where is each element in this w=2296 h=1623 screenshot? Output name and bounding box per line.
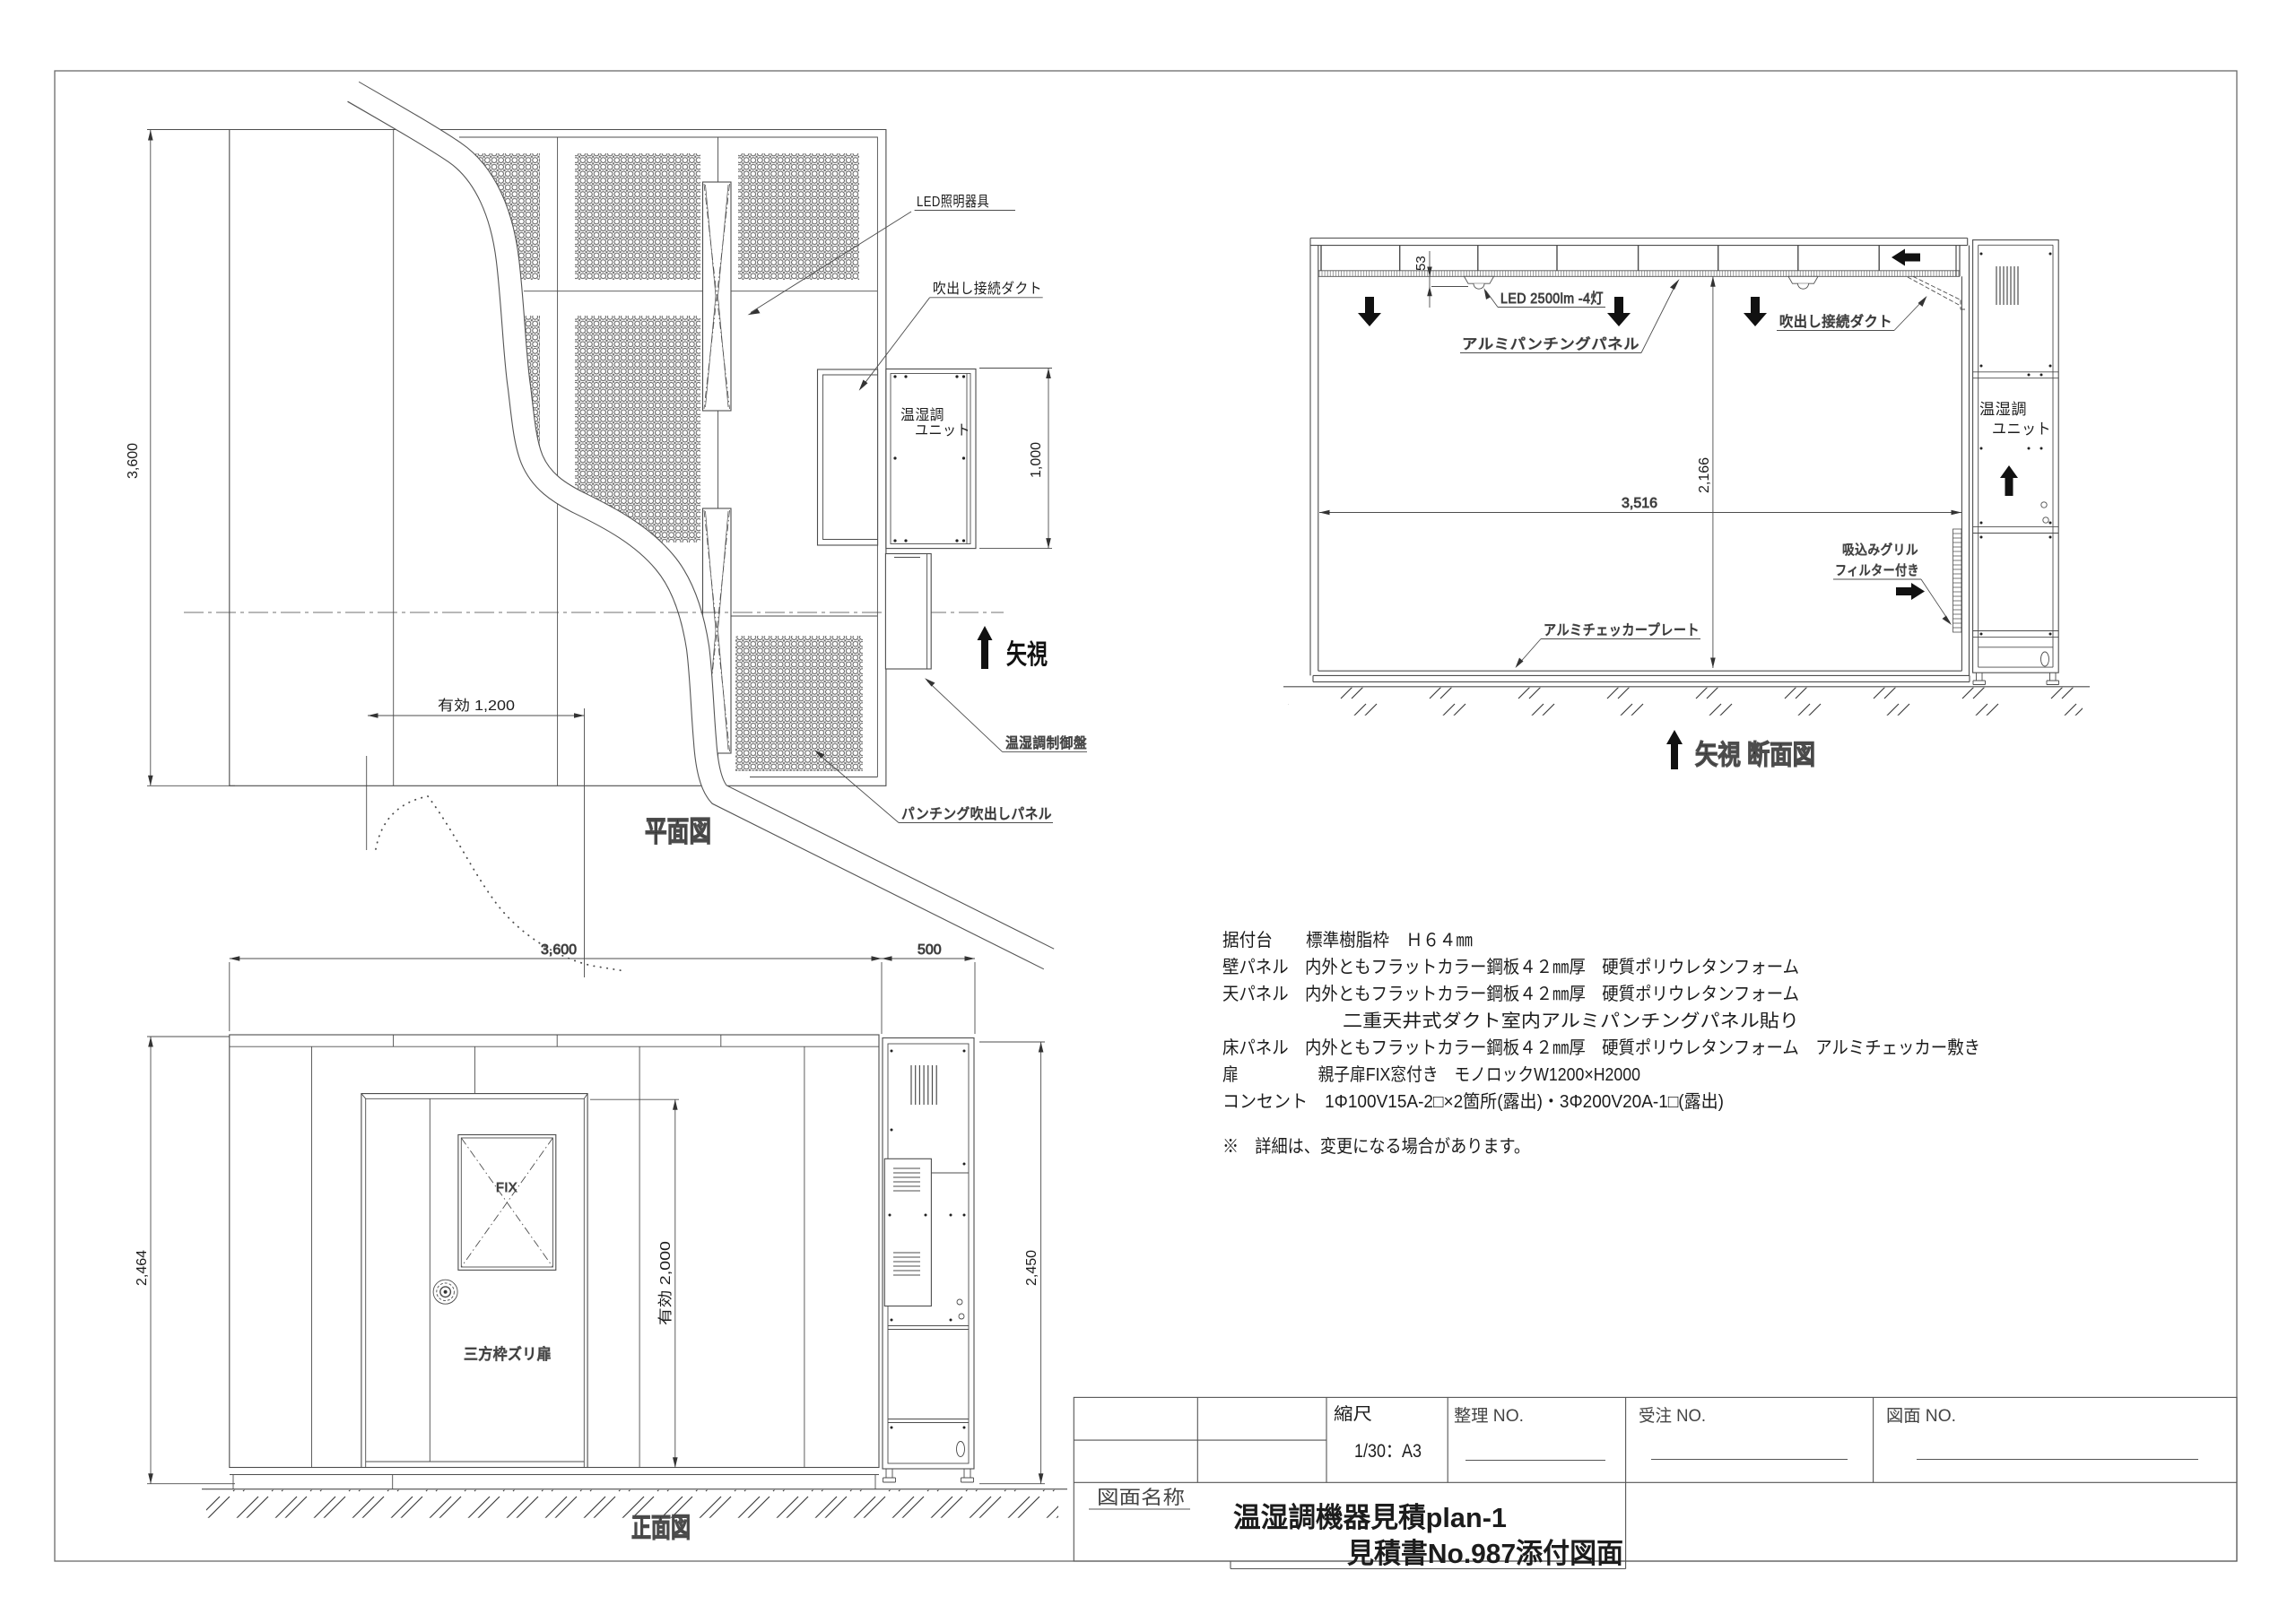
svg-text:※ 詳細は、変更になる場合があります。: ※ 詳細は、変更になる場合があります。 [1222,1136,1530,1157]
svg-text:LED 2500lm -4灯: LED 2500lm -4灯 [1500,291,1604,307]
svg-text:有効 2,000: 有効 2,000 [657,1241,674,1325]
svg-text:天パネル 内外ともフラットカラー鋼板４２㎜厚 硬質ポリウレタ: 天パネル 内外ともフラットカラー鋼板４２㎜厚 硬質ポリウレタンフォーム [1222,984,1799,1004]
svg-text:縮尺: 縮尺 [1334,1404,1372,1424]
svg-text:コンセント 1Φ100V15A-2□×2箇所(露出)・3Φ2: コンセント 1Φ100V15A-2□×2箇所(露出)・3Φ200V20A-1□(… [1222,1091,1724,1112]
svg-text:図面名称: 図面名称 [1097,1488,1185,1508]
svg-text:床パネル 内外ともフラットカラー鋼板４２㎜厚 硬質ポリウレタ: 床パネル 内外ともフラットカラー鋼板４２㎜厚 硬質ポリウレタンフォーム アルミチ… [1222,1037,1980,1058]
svg-text:2,166: 2,166 [1697,457,1712,493]
svg-text:53: 53 [1413,256,1429,271]
svg-text:フィルター付き: フィルター付き [1835,563,1919,578]
svg-text:温湿調制御盤: 温湿調制御盤 [1005,735,1087,751]
svg-text:据付台 標準樹脂枠 Ｈ６４㎜: 据付台 標準樹脂枠 Ｈ６４㎜ [1222,930,1473,950]
svg-text:吹出し接続ダクト: 吹出し接続ダクト [933,281,1042,297]
svg-text:三方枠ズリ扉: 三方枠ズリ扉 [464,1346,552,1363]
svg-text:整理 NO.: 整理 NO. [1454,1406,1524,1426]
svg-text:吹出し接続ダクト: 吹出し接続ダクト [1779,314,1892,330]
svg-text:ユニット: ユニット [915,423,970,438]
svg-text:扉 親子扉FIX窓付き モノロックW1200×H20: 扉 親子扉FIX窓付き モノロックW1200×H2000 [1222,1064,1640,1085]
svg-text:2,450: 2,450 [1024,1250,1039,1286]
svg-text:3,600: 3,600 [126,443,141,479]
svg-text:ユニット: ユニット [1992,421,2051,438]
svg-text:正面図: 正面図 [631,1514,691,1543]
svg-text:パンチング吹出しパネル: パンチング吹出しパネル [901,806,1052,822]
svg-text:図面 NO.: 図面 NO. [1886,1407,1956,1426]
svg-text:矢視: 矢視 [1006,640,1048,670]
svg-text:アルミパンチングパネル: アルミパンチングパネル [1462,336,1639,352]
svg-text:見積書No.987添付図面: 見積書No.987添付図面 [1347,1538,1623,1569]
svg-text:温湿調機器見積plan-1: 温湿調機器見積plan-1 [1233,1502,1507,1533]
svg-text:FIX: FIX [496,1180,517,1195]
svg-text:1/30：A3: 1/30：A3 [1354,1441,1422,1462]
svg-text:平面図: 平面図 [645,815,711,847]
svg-text:500: 500 [918,942,942,958]
svg-text:3,600: 3,600 [541,942,577,958]
svg-text:壁パネル 内外ともフラットカラー鋼板４２㎜厚 硬質ポリウレタ: 壁パネル 内外ともフラットカラー鋼板４２㎜厚 硬質ポリウレタンフォーム [1222,957,1799,977]
svg-text:温湿調: 温湿調 [900,407,944,423]
svg-text:LED照明器具: LED照明器具 [917,194,989,210]
svg-text:アルミチェッカープレート: アルミチェッカープレート [1544,622,1700,638]
svg-text:吸込みグリル: 吸込みグリル [1842,542,1918,558]
svg-text:3,516: 3,516 [1622,496,1657,511]
svg-text:温湿調: 温湿調 [1979,401,2027,418]
svg-text:2,464: 2,464 [135,1250,150,1286]
svg-text:矢視 断面図: 矢視 断面図 [1695,741,1815,770]
svg-text:二重天井式ダクト室内アルミパンチングパネル貼り: 二重天井式ダクト室内アルミパンチングパネル貼り [1343,1011,1799,1031]
svg-text:有効 1,200: 有効 1,200 [438,698,515,714]
svg-text:受注 NO.: 受注 NO. [1639,1406,1706,1426]
svg-text:1,000: 1,000 [1029,442,1044,478]
